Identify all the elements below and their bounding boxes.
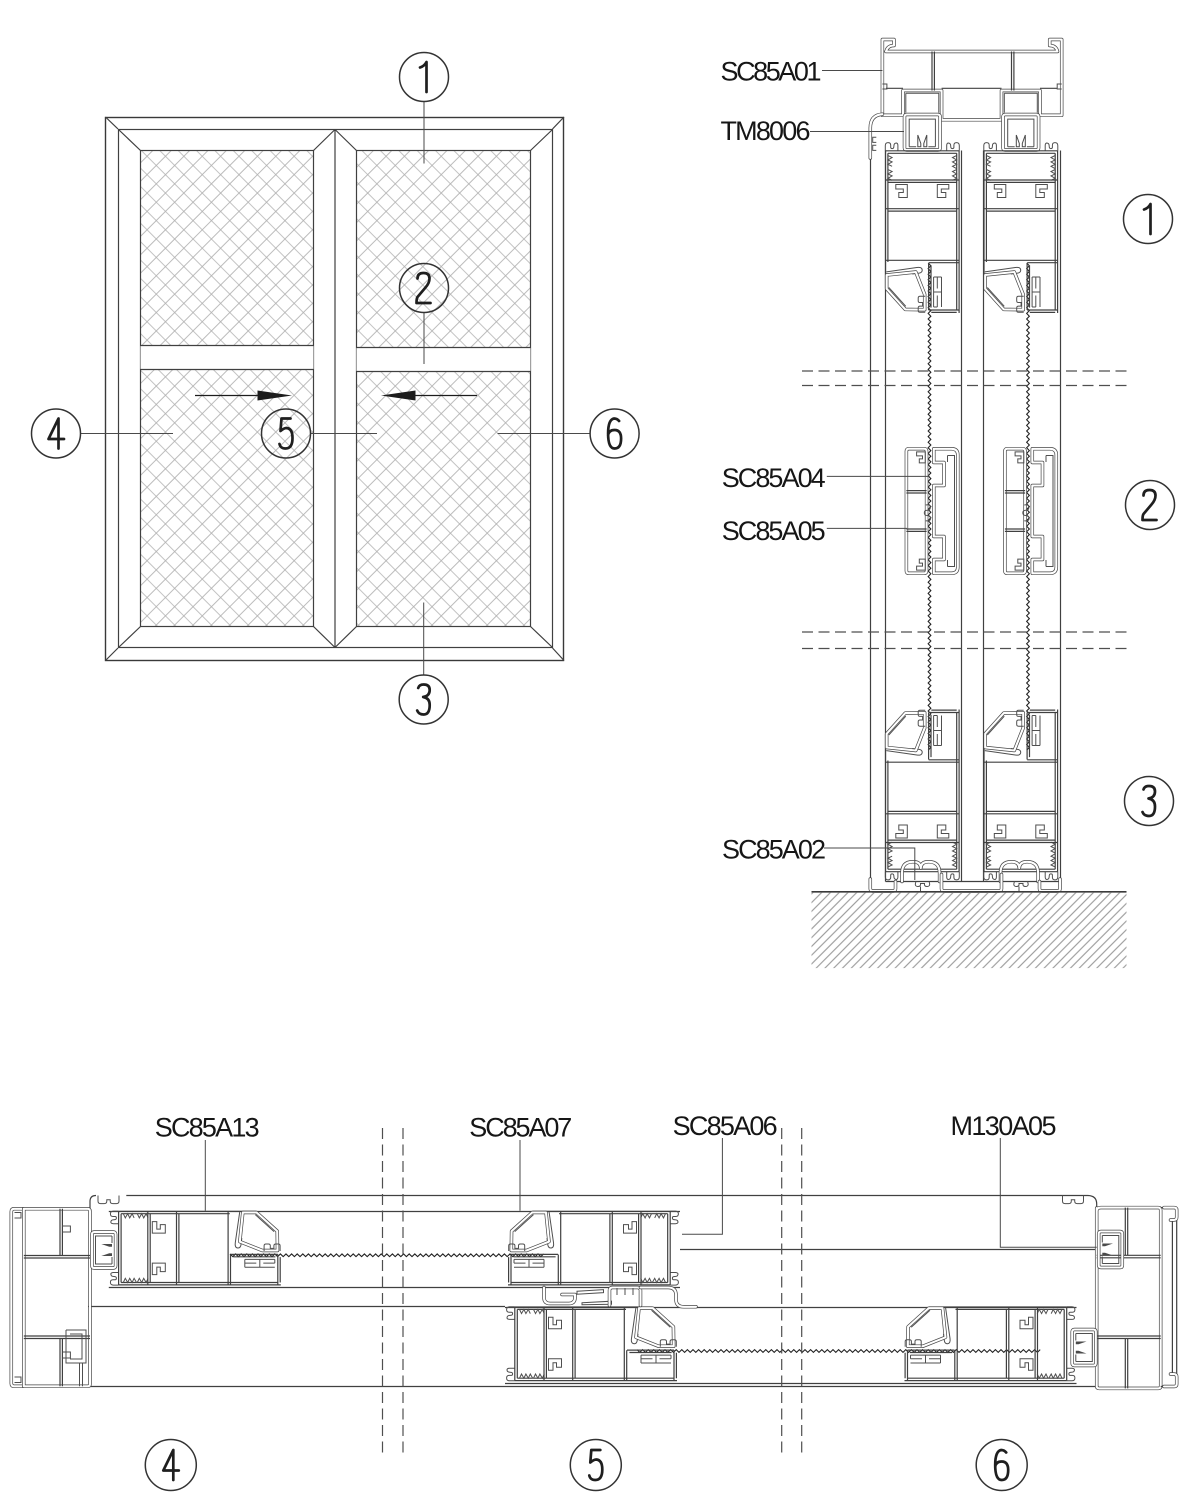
svg-text:SC85A06: SC85A06	[673, 1111, 778, 1141]
svg-text:SC85A04: SC85A04	[722, 463, 826, 493]
svg-text:SC85A05: SC85A05	[722, 516, 826, 546]
svg-text:TM8006: TM8006	[721, 116, 811, 146]
svg-text:SC85A02: SC85A02	[722, 835, 826, 865]
svg-text:SC85A13: SC85A13	[155, 1113, 260, 1143]
svg-text:SC85A01: SC85A01	[721, 57, 822, 87]
svg-text:SC85A07: SC85A07	[469, 1113, 572, 1143]
svg-text:M130A05: M130A05	[951, 1111, 1057, 1141]
